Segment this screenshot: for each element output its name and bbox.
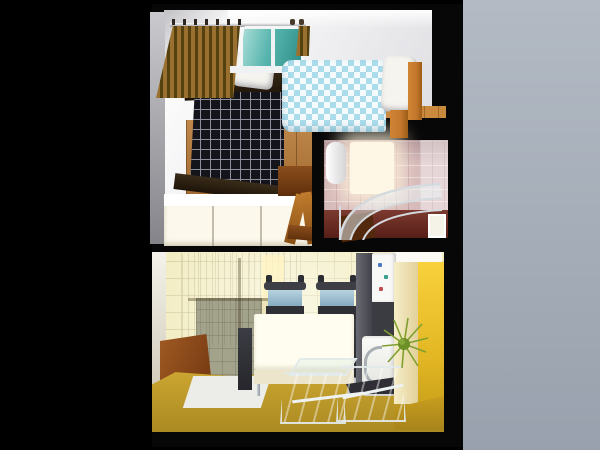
bedroom-left-wall [150,12,165,244]
curtain-rings [172,19,244,25]
fridge-magnet-2 [384,275,388,279]
refrigerator [372,253,396,303]
chair2-top-bar [316,282,358,290]
table-front-leg-left [257,384,260,396]
curtain-ring-right-2 [299,19,304,25]
apartment-render-scene [0,0,600,450]
backdrop-gradient [463,0,600,450]
dark-checkered-bed-cover [190,92,284,190]
wardrobe-divider-2 [260,206,262,246]
bed-frame-side [408,62,422,120]
chair1-top-bar [264,282,306,290]
window-mullion [271,29,275,67]
shower-canopy [324,140,448,240]
blue-checkered-duvet [282,60,386,132]
wardrobe-divider-1 [212,206,214,246]
bed-frame-rail [390,110,408,138]
fridge-magnet-1 [378,263,382,267]
green-plant [380,316,430,370]
fridge-magnet-3 [379,287,383,291]
curtain-ring-right-1 [290,19,295,25]
side-chair-left [238,328,252,390]
